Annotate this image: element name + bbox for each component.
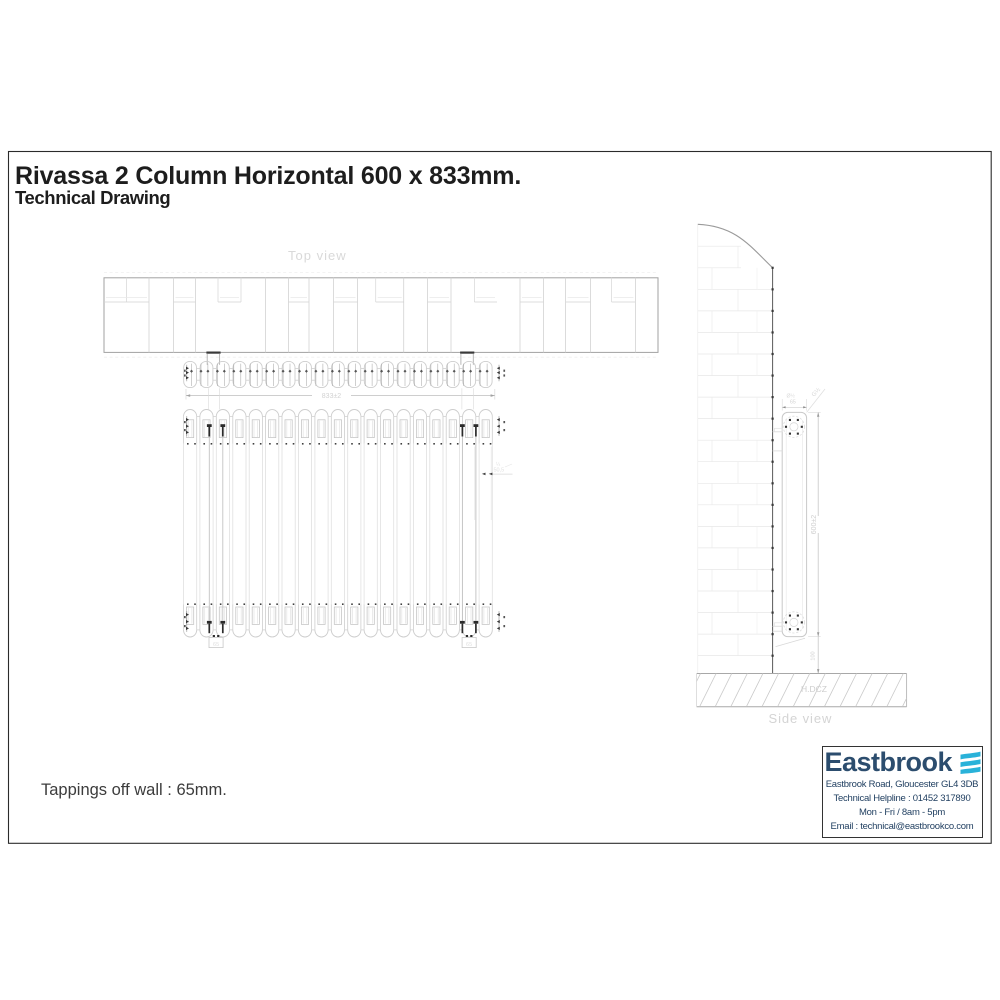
svg-text:65: 65	[213, 642, 219, 648]
svg-text:G½: G½	[810, 386, 822, 398]
svg-text:65: 65	[466, 642, 472, 648]
svg-text:100: 100	[811, 651, 817, 660]
svg-text:600±2: 600±2	[811, 515, 818, 535]
svg-text:833±2: 833±2	[322, 393, 342, 400]
svg-text:50,5: 50,5	[494, 468, 505, 474]
svg-text:Ø½: Ø½	[787, 393, 796, 400]
svg-text:65: 65	[790, 400, 796, 406]
